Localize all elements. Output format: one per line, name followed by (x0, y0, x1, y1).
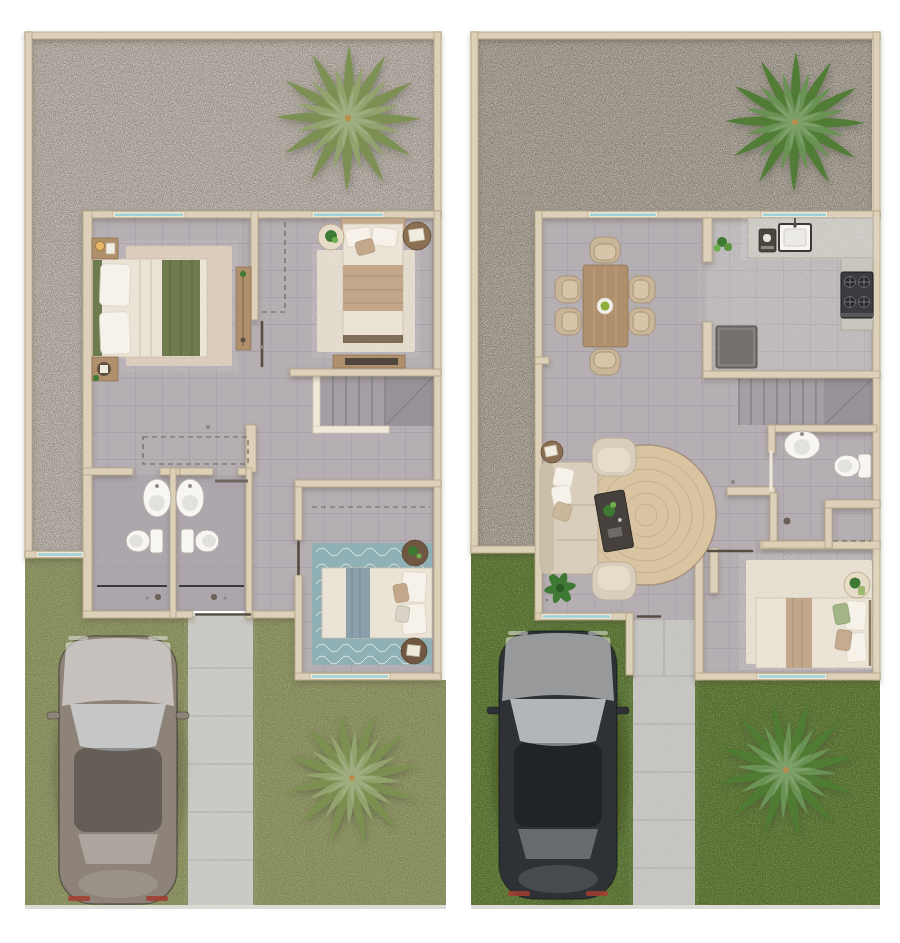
ground-floor-plan (471, 32, 880, 909)
panel-left-bottom-edge (25, 905, 446, 909)
floorplan-page (0, 0, 900, 943)
armchair-bottom (592, 562, 636, 600)
refrigerator (716, 326, 757, 368)
walkway-left (188, 616, 253, 908)
bed-ground (756, 598, 872, 668)
floorplan-rendering (0, 0, 900, 943)
bedroom-ground (746, 560, 872, 668)
dining-table (583, 265, 628, 347)
car-charcoal (487, 631, 629, 901)
coffee-maker (759, 229, 776, 252)
nightstand-tray (92, 357, 118, 381)
nightstand-lamp (92, 238, 118, 259)
side-table-book (541, 441, 563, 463)
toilet-2 (181, 529, 219, 553)
armchair-top (592, 438, 636, 476)
bedroom-1 (92, 238, 251, 381)
round-table-plant (318, 224, 344, 250)
side-table-plant-3 (402, 540, 428, 566)
sofa (540, 462, 598, 574)
bed-2 (341, 218, 405, 343)
staircase-ground (738, 378, 873, 425)
round-table-plant-ground (844, 572, 870, 598)
panel-right-bottom-edge (471, 905, 880, 909)
stair-railing (313, 376, 320, 433)
console-shelf (333, 355, 405, 368)
bedroom-2 (317, 218, 431, 368)
bed-3 (322, 568, 432, 638)
bedroom-3 (312, 540, 432, 665)
round-table-books (403, 222, 431, 250)
walkway-right (633, 616, 695, 908)
toilet-1 (126, 529, 163, 553)
upper-floor-plan (25, 32, 446, 909)
toilet-ground (834, 454, 871, 478)
staircase-upper (313, 376, 434, 433)
bed-1 (93, 259, 207, 357)
gas-stove (841, 272, 873, 318)
side-table-tray-3 (401, 638, 427, 664)
wardrobe-shelf (236, 267, 251, 350)
car-silver (47, 636, 189, 904)
